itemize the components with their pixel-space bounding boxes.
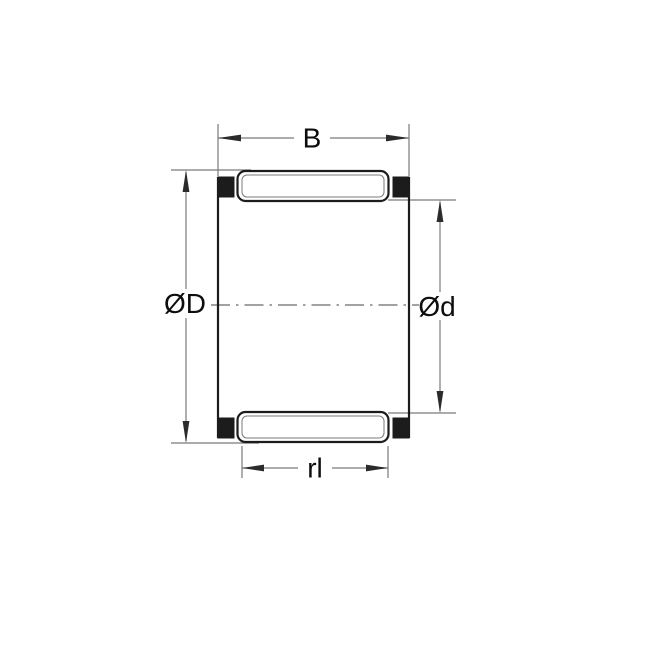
od-arrowhead-bottom bbox=[183, 421, 190, 443]
id-arrowhead-bottom bbox=[437, 391, 444, 413]
dimension-roller-length: rl bbox=[242, 446, 388, 484]
needle-bearing-cross-section-drawing: B ØD Ød bbox=[0, 0, 670, 670]
rl-arrowhead-left bbox=[242, 465, 264, 472]
od-arrowhead-top bbox=[183, 170, 190, 192]
dimension-B: B bbox=[218, 123, 409, 177]
cage-section-bottom-left bbox=[218, 418, 234, 438]
dim-label-outer-diameter: ØD bbox=[164, 288, 206, 319]
bearing-body bbox=[218, 171, 409, 442]
cage-section-top-right bbox=[393, 177, 409, 197]
dimension-outer-diameter: ØD bbox=[164, 170, 259, 443]
bearing-drawing-canvas: B ØD Ød bbox=[0, 0, 670, 670]
b-arrowhead-left bbox=[218, 135, 241, 142]
dimension-inner-diameter: Ød bbox=[388, 200, 456, 413]
dim-label-inner-diameter: Ød bbox=[418, 291, 455, 322]
dim-label-roller-length: rl bbox=[307, 453, 323, 484]
dim-label-width-B: B bbox=[303, 123, 322, 154]
b-arrowhead-right bbox=[386, 135, 409, 142]
cage-section-top-left bbox=[218, 177, 234, 197]
id-arrowhead-top bbox=[437, 200, 444, 222]
cage-section-bottom-right bbox=[393, 418, 409, 438]
rl-arrowhead-right bbox=[366, 465, 388, 472]
